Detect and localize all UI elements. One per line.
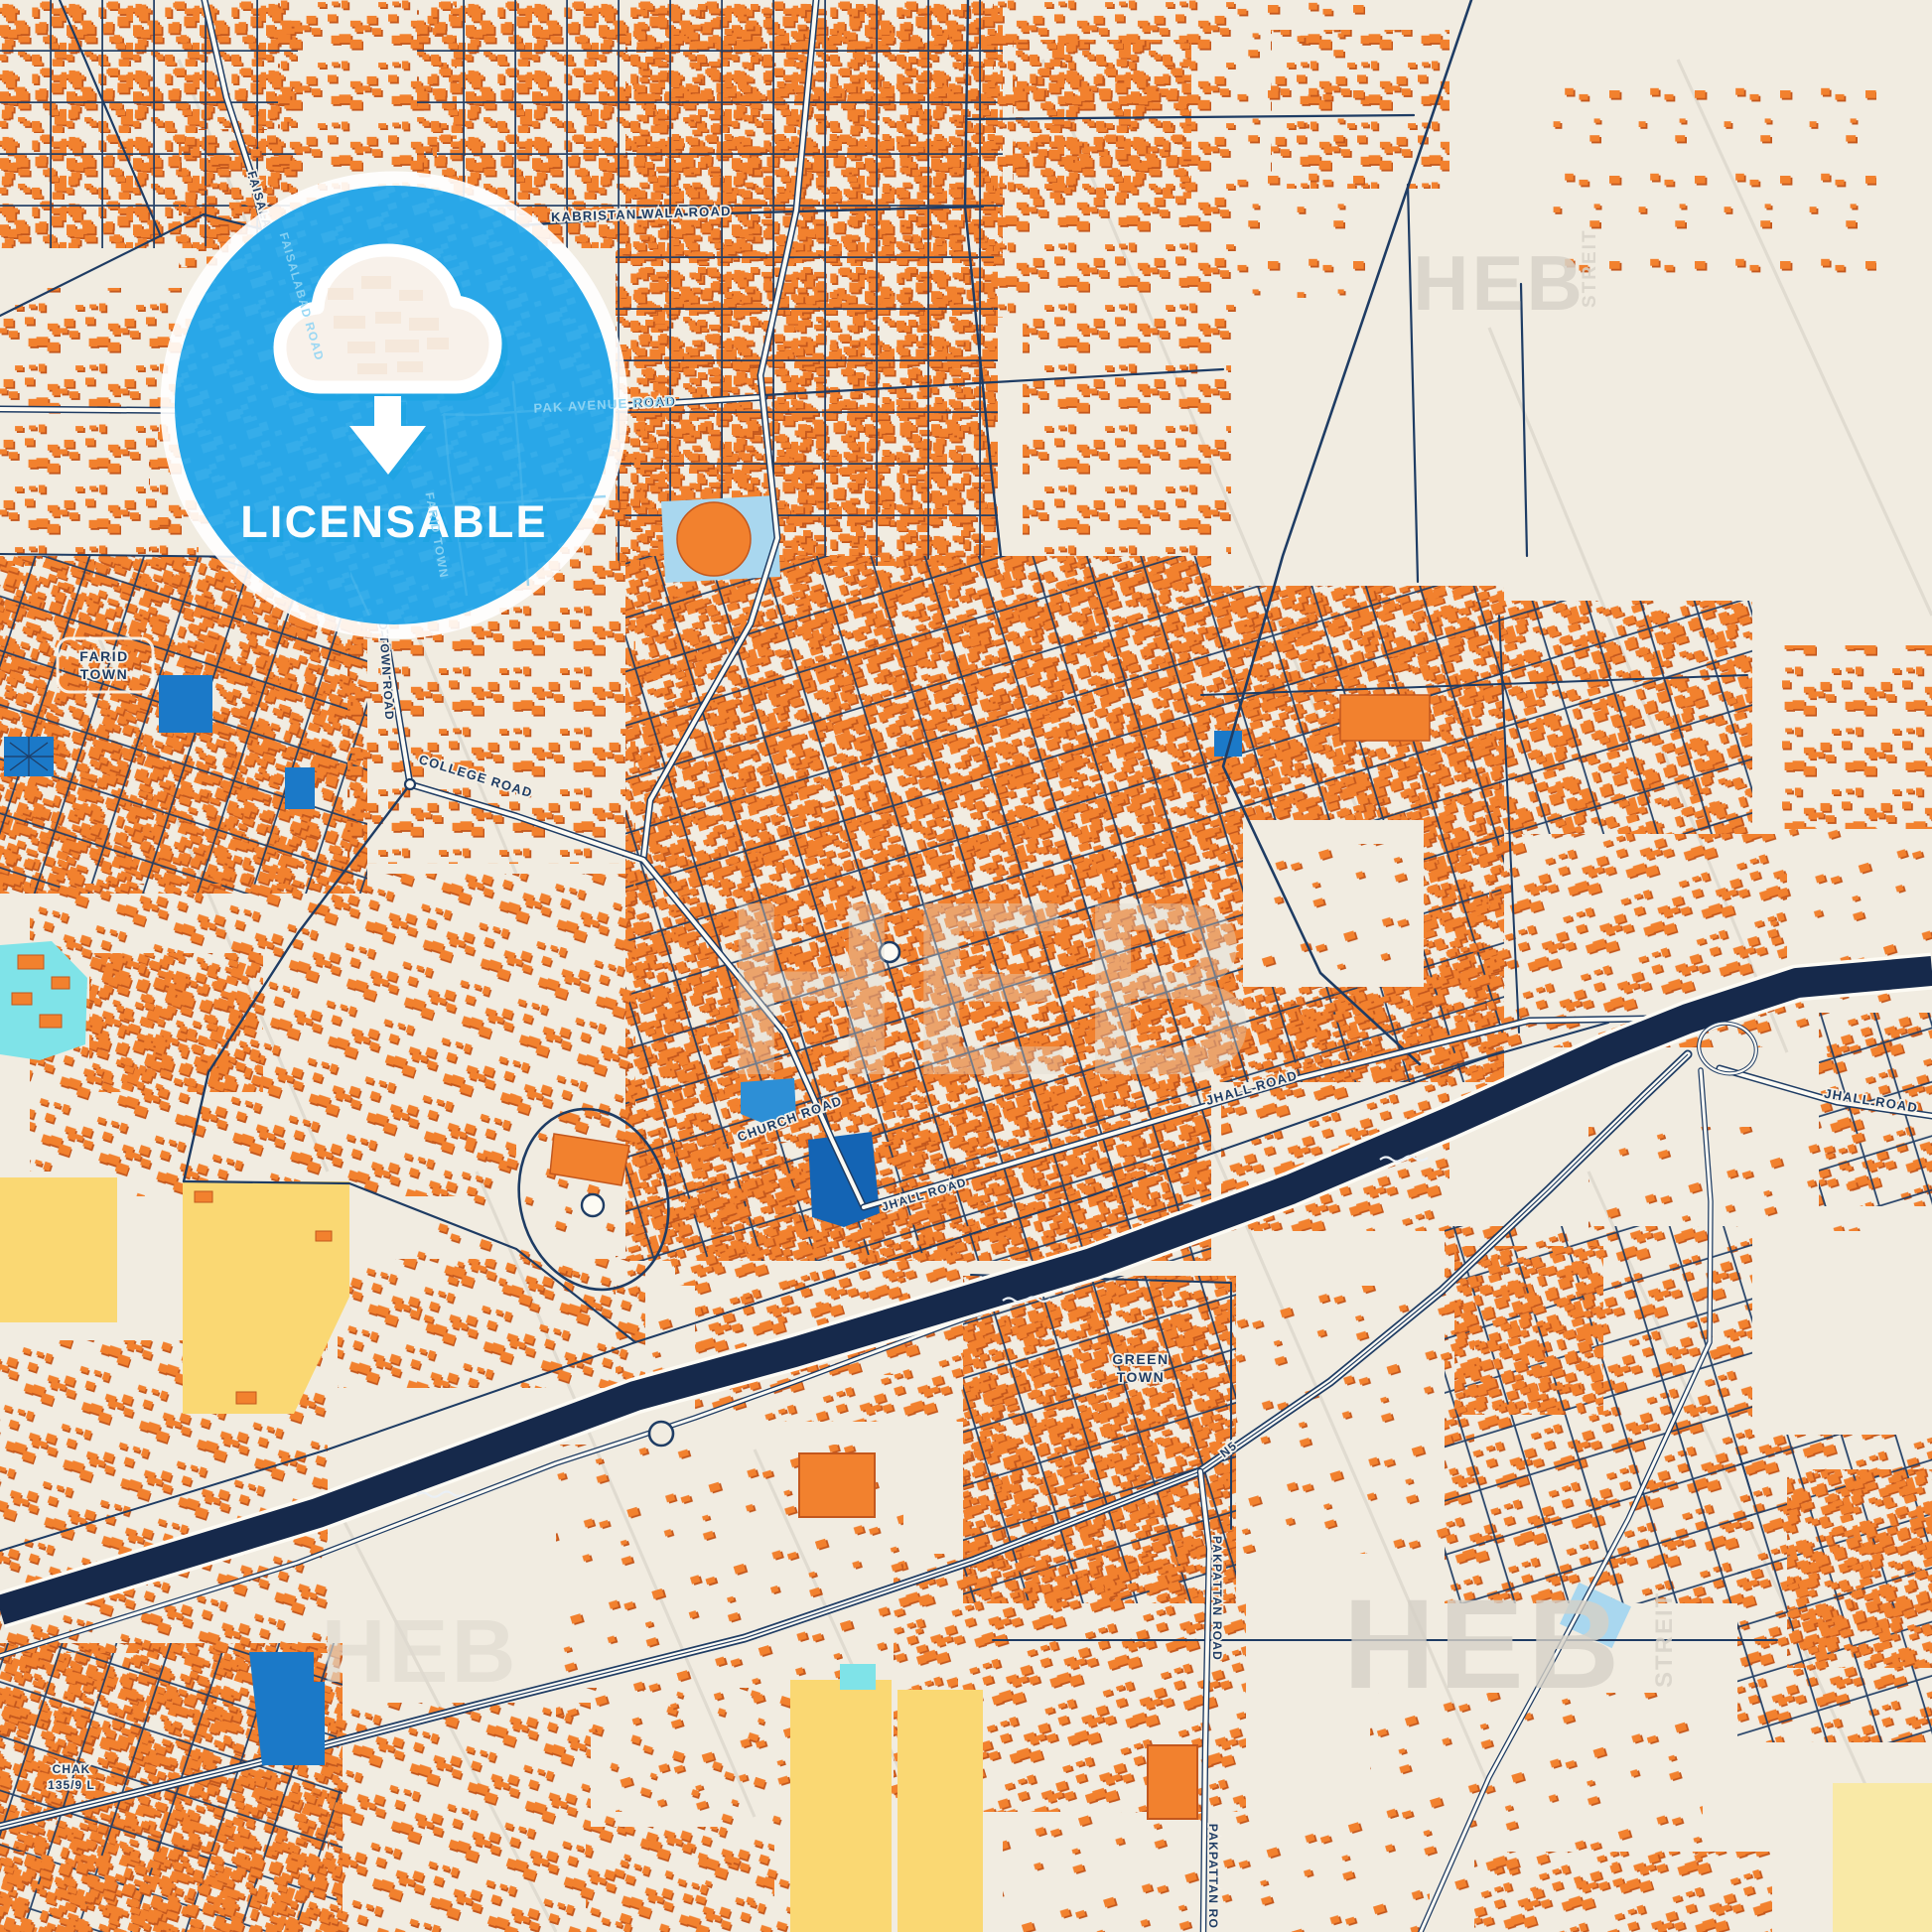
svg-text:FARID: FARID — [79, 648, 129, 664]
svg-text:STREIT: STREIT — [1651, 1591, 1678, 1688]
svg-text:PAKPATTAN ROAD: PAKPATTAN ROAD — [1210, 1536, 1224, 1661]
svg-text:STREIT: STREIT — [1580, 228, 1600, 308]
svg-text:TOWN: TOWN — [1117, 1369, 1166, 1385]
svg-text:HEB: HEB — [321, 1602, 518, 1702]
svg-text:135/9 L: 135/9 L — [48, 1778, 95, 1792]
svg-text:HEB: HEB — [1343, 1574, 1623, 1716]
svg-text:HEB: HEB — [722, 850, 1264, 1127]
svg-text:GREEN: GREEN — [1112, 1351, 1169, 1367]
svg-text:CHAK: CHAK — [53, 1762, 91, 1776]
svg-text:HEB: HEB — [1413, 239, 1586, 327]
svg-text:PAKPATTAN RO: PAKPATTAN RO — [1206, 1824, 1220, 1929]
svg-text:TOWN: TOWN — [80, 666, 129, 682]
svg-text:LICENSABLE: LICENSABLE — [240, 496, 548, 547]
